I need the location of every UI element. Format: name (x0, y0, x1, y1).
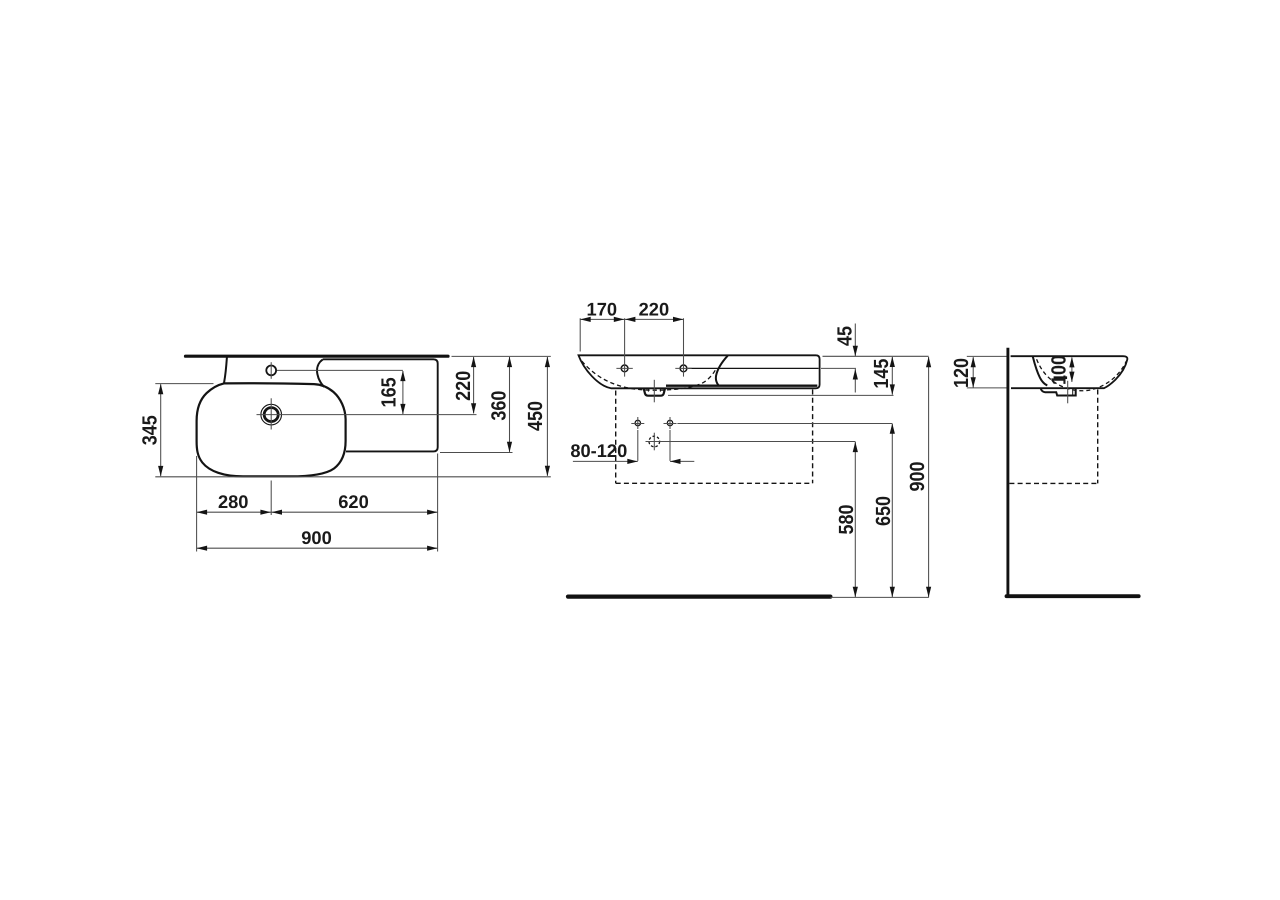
svg-text:45: 45 (833, 326, 856, 346)
svg-text:120: 120 (950, 358, 973, 388)
svg-text:100: 100 (1047, 355, 1070, 385)
svg-text:80-120: 80-120 (570, 440, 627, 461)
svg-text:220: 220 (452, 371, 475, 401)
svg-text:165: 165 (378, 377, 401, 407)
svg-text:170: 170 (587, 298, 618, 319)
svg-text:145: 145 (870, 359, 893, 389)
svg-text:450: 450 (524, 401, 547, 431)
svg-text:650: 650 (872, 496, 895, 526)
svg-text:900: 900 (301, 527, 332, 548)
svg-text:220: 220 (639, 298, 670, 319)
svg-text:280: 280 (218, 491, 249, 512)
svg-text:345: 345 (139, 415, 162, 445)
svg-text:900: 900 (906, 461, 929, 491)
svg-text:360: 360 (487, 391, 510, 421)
svg-text:580: 580 (835, 504, 858, 534)
svg-text:620: 620 (338, 491, 369, 512)
